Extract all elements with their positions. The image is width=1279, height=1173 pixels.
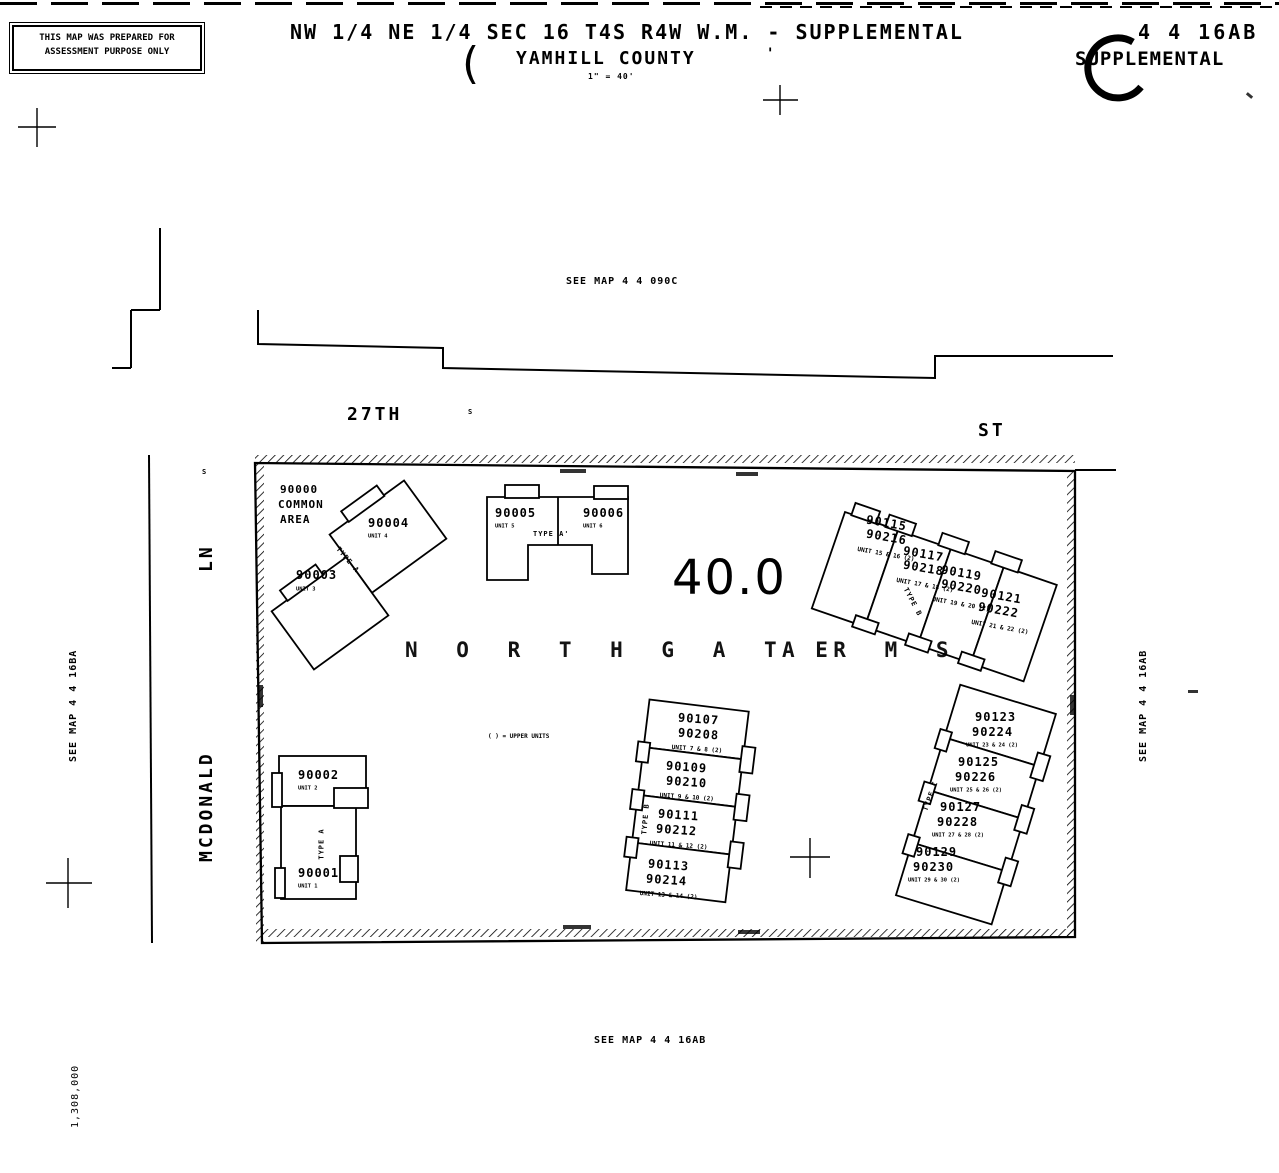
ref-east: SEE MAP 4 4 16AB: [1138, 650, 1149, 762]
map-number: 4 4 16AB: [1138, 20, 1258, 44]
dimension-smudge: [259, 685, 263, 707]
unit-90123-label: 90123: [975, 710, 1016, 724]
dimension-smudge: [563, 925, 591, 929]
dimension-smudge: [1070, 695, 1074, 715]
unit-90224-label: 90224: [972, 725, 1013, 739]
unit-90107-label: 90107: [678, 711, 720, 728]
unit-90006-label: 90006: [583, 506, 624, 520]
disclaimer-box: THIS MAP WAS PREPARED FOR ASSESSMENT PUR…: [12, 25, 202, 71]
street-marker-north: S: [468, 408, 472, 416]
unit-90003-label: 90003: [296, 568, 337, 582]
county-label: YAMHILL COUNTY: [516, 48, 696, 69]
dimension-smudge: [736, 472, 758, 476]
unit-90006-sub: UNIT 6: [583, 523, 603, 529]
unit-90111-label: 90111: [658, 807, 700, 824]
unit-90004-label: 90004: [368, 516, 409, 530]
acreage-label: 40.0: [672, 550, 787, 606]
unit-90113-label: 90113: [648, 857, 690, 874]
unit-90005-sub: UNIT 5: [495, 523, 515, 529]
unit-90208-label: 90208: [678, 726, 720, 743]
unit-90129-label: 90129: [916, 845, 957, 859]
unit-90125-label: 90125: [958, 755, 999, 769]
type-a-label-b6: TYPE A: [318, 828, 326, 859]
common-area-word2: AREA: [280, 512, 311, 527]
unit-90001-label: 90001: [298, 866, 339, 880]
street-marker-west: S: [202, 468, 206, 476]
unit-90123-sub: UNIT 23 & 24 (2): [966, 742, 1018, 748]
ref-north: SEE MAP 4 4 090C: [566, 276, 678, 287]
complex-name-arms: A R M S: [782, 638, 962, 662]
common-area-word1: COMMON: [278, 497, 324, 512]
unit-90214-label: 90214: [646, 872, 688, 889]
ref-west: SEE MAP 4 4 16BA: [68, 650, 79, 762]
supplemental-label: SUPPLEMENTAL: [1075, 48, 1224, 70]
disclaimer-line1: THIS MAP WAS PREPARED FOR: [14, 31, 200, 45]
unit-90125-sub: UNIT 25 & 26 (2): [950, 787, 1002, 793]
disclaimer-line2: ASSESSMENT PURPOSE ONLY: [14, 45, 200, 59]
unit-90210-label: 90210: [666, 774, 708, 791]
stray-mark: [1188, 690, 1198, 693]
coordinate-label: 1,308,000: [70, 1065, 81, 1128]
stray-paren-mark: (: [462, 38, 479, 89]
street-mcdonald-label: MCDONALD: [196, 751, 217, 862]
common-area-number: 90000: [280, 482, 318, 497]
map-title: NW 1/4 NE 1/4 SEC 16 T4S R4W W.M. - SUPP…: [290, 20, 964, 44]
unit-90228-label: 90228: [937, 815, 978, 829]
unit-90003-sub: UNIT 3: [296, 586, 316, 592]
map-linework: [0, 0, 1279, 1173]
street-st-label: ST: [978, 420, 1006, 441]
unit-90127-label: 90127: [940, 800, 981, 814]
dimension-smudge: [560, 469, 586, 473]
street-ln-label: LN: [196, 544, 217, 572]
unit-90109-label: 90109: [666, 759, 708, 776]
ref-south: SEE MAP 4 4 16AB: [594, 1035, 706, 1046]
unit-90226-label: 90226: [955, 770, 996, 784]
unit-90212-label: 90212: [656, 822, 698, 839]
unit-90230-label: 90230: [913, 860, 954, 874]
unit-90002-label: 90002: [298, 768, 339, 782]
unit-90002-sub: UNIT 2: [298, 785, 318, 791]
stray-tick-mark: ': [766, 46, 774, 62]
assessor-map-page: THIS MAP WAS PREPARED FOR ASSESSMENT PUR…: [0, 0, 1279, 1173]
scale-label: 1" = 40': [588, 72, 635, 81]
unit-90005-label: 90005: [495, 506, 536, 520]
complex-name-northgate: N O R T H G A T E: [405, 638, 841, 662]
dimension-smudge: [738, 930, 760, 934]
unit-90129-sub: UNIT 29 & 30 (2): [908, 877, 960, 883]
type-a-prime-label: TYPE A': [533, 530, 570, 538]
street-27th-label: 27TH: [347, 404, 402, 425]
unit-90001-sub: UNIT 1: [298, 883, 318, 889]
upper-units-note: ( ) = UPPER UNITS: [488, 733, 549, 740]
unit-90127-sub: UNIT 27 & 28 (2): [932, 832, 984, 838]
unit-90004-sub: UNIT 4: [368, 533, 388, 539]
